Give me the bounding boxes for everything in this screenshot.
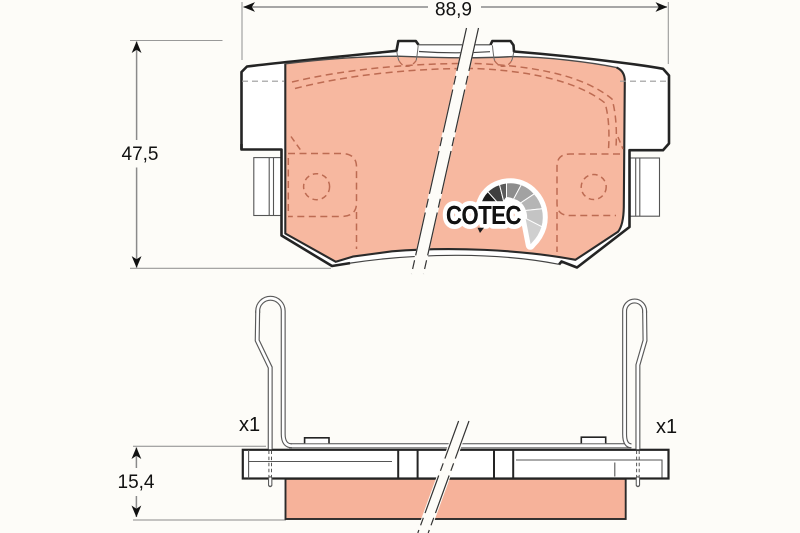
- svg-text:x1: x1: [239, 414, 260, 436]
- svg-text:15,4: 15,4: [118, 472, 155, 493]
- svg-text:47,5: 47,5: [122, 144, 159, 165]
- svg-text:88,9: 88,9: [435, 0, 472, 21]
- svg-text:COTEC: COTEC: [446, 202, 521, 230]
- svg-text:x1: x1: [656, 416, 677, 438]
